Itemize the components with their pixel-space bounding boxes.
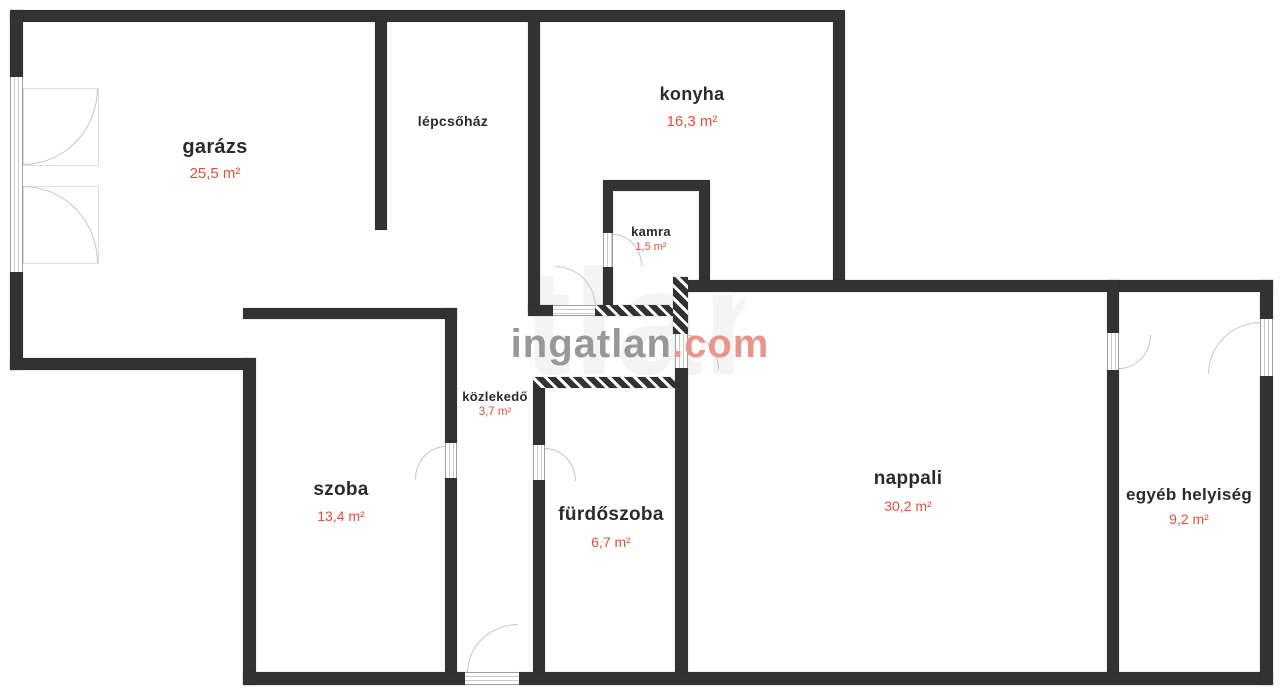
garage-door-frame xyxy=(10,77,23,272)
wall-livingroom-left xyxy=(675,368,688,672)
pantry-door-frame xyxy=(603,233,613,267)
room-label-kamra: kamra 1,5 m² xyxy=(631,224,671,253)
right-exterior-door-swing-arc-icon xyxy=(1208,322,1261,374)
wall-pantry-right xyxy=(699,191,710,280)
wall-bathroom-left-lower xyxy=(533,480,545,672)
bathroom-door-frame xyxy=(533,445,545,480)
room-label-egyeb-helyiseg: egyéb helyiség 9,2 m² xyxy=(1126,485,1252,527)
room-name: fürdőszoba xyxy=(558,504,663,526)
wall-mid-left xyxy=(528,305,555,316)
room-label-lepcsohaz: lépcsőház xyxy=(418,113,488,129)
room-name: lépcsőház xyxy=(418,113,488,129)
wall-pantry-left-upper xyxy=(603,191,613,233)
room-name: konyha xyxy=(660,84,725,105)
wall-stairwell-left xyxy=(375,22,387,230)
wall-divider-lower xyxy=(1107,370,1119,672)
entry-door-frame xyxy=(465,672,519,685)
watermark-tld: .com xyxy=(672,322,769,366)
room-label-garazs: garázs 25,5 m² xyxy=(182,136,247,182)
wall-livingroom-top xyxy=(688,280,1273,292)
room-label-szoba: szoba 13,4 m² xyxy=(313,479,368,524)
room-label-kozlekedo: közlekedő 3,7 m² xyxy=(462,389,528,418)
room-label-furdoszoba: fürdőszoba 6,7 m² xyxy=(558,504,663,550)
room-name: egyéb helyiség xyxy=(1126,485,1252,505)
wall-hatched-bathroom-top xyxy=(533,377,675,388)
room-name: kamra xyxy=(631,224,671,239)
wall-left-lower xyxy=(10,272,23,370)
entry-door-swing-arc-icon xyxy=(467,624,518,673)
wall-kitchen-left xyxy=(528,22,540,312)
szoba-door-swing-arc-icon xyxy=(415,446,446,479)
room-label-konyha: konyha 16,3 m² xyxy=(660,84,725,130)
szoba-door-frame xyxy=(445,443,457,478)
wall-kitchen-right xyxy=(833,22,845,281)
room-area: 9,2 m² xyxy=(1126,511,1252,527)
wall-bathroom-left-upper xyxy=(533,388,545,445)
wall-garage-bottom xyxy=(10,358,255,370)
room-name: garázs xyxy=(182,136,247,159)
room-area: 6,7 m² xyxy=(558,534,663,550)
wall-szoba-right-lower xyxy=(445,478,457,672)
other-room-door-swing-arc-icon xyxy=(1119,335,1151,369)
wall-top xyxy=(10,10,845,22)
room-name: közlekedő xyxy=(462,389,528,404)
room-area: 16,3 m² xyxy=(660,113,725,130)
floor-plan: ingatlan garázs xyxy=(0,0,1280,689)
wall-bottom-left xyxy=(243,672,467,685)
right-exterior-door-frame xyxy=(1260,319,1273,376)
wall-right-lower xyxy=(1260,376,1273,685)
room-area: 1,5 m² xyxy=(631,241,671,253)
other-room-door-frame xyxy=(1107,333,1119,370)
wall-left-upper xyxy=(10,10,23,77)
wall-bottom-right xyxy=(519,672,1273,685)
room-area: 30,2 m² xyxy=(874,498,943,514)
watermark: ingatlan.com xyxy=(511,322,770,367)
wall-pantry-top xyxy=(603,180,710,191)
wall-szoba-right-upper xyxy=(445,308,457,443)
watermark-brand: ingatlan xyxy=(511,322,672,366)
stairwell-door-frame xyxy=(553,305,595,316)
room-area: 25,5 m² xyxy=(182,165,247,182)
bathroom-door-swing-arc-icon xyxy=(545,448,576,481)
room-area: 13,4 m² xyxy=(313,508,368,524)
wall-szoba-top xyxy=(243,308,457,319)
room-label-nappali: nappali 30,2 m² xyxy=(874,468,943,514)
room-name: nappali xyxy=(874,468,943,490)
wall-divider-upper xyxy=(1107,280,1119,333)
wall-szoba-left xyxy=(243,358,256,685)
wall-hatched-mid xyxy=(595,305,675,316)
room-area: 3,7 m² xyxy=(462,406,528,418)
room-name: szoba xyxy=(313,479,368,501)
